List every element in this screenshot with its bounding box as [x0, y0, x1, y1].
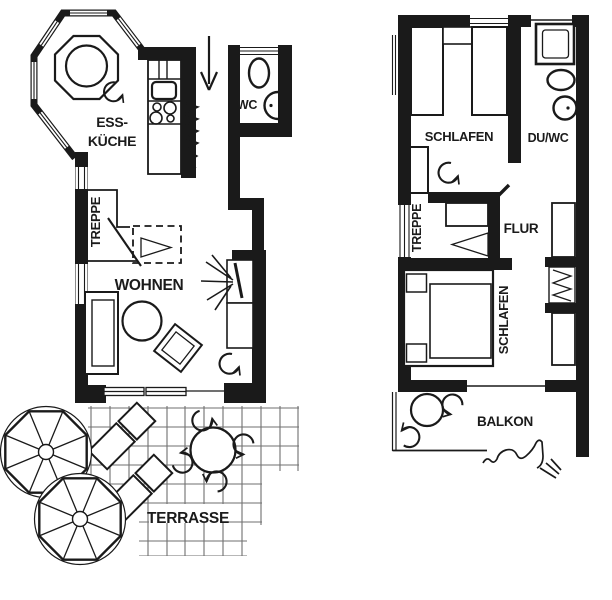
room-label-balkon: BALKON [477, 414, 533, 429]
room-label-esskueche-line2: KÜCHE [88, 133, 136, 149]
room-label-terrasse: TERRASSE [147, 510, 229, 527]
toilet-icon [249, 59, 269, 88]
radiator-icon [549, 267, 575, 303]
room-label-schlafen-main: SCHLAFEN [496, 286, 511, 354]
washbasin-icon [554, 97, 577, 120]
room-label-schlafen-top: SCHLAFEN [425, 129, 493, 144]
window-wc [240, 45, 278, 57]
window-sill-left [393, 35, 396, 95]
sofa-icon [85, 292, 118, 374]
floorplan-page: ESS- KÜCHE WC TREPPE WOHNEN TERRASSE [0, 0, 612, 600]
room-label-treppe-ground: TREPPE [88, 196, 103, 247]
patio-window [104, 388, 225, 396]
parasol-icon [35, 474, 126, 565]
armchair-icon [154, 324, 202, 372]
room-label-treppe-upper: TREPPE [410, 204, 424, 252]
window-left-1 [76, 167, 88, 189]
nightstand-icon [443, 27, 472, 44]
toilet-icon [548, 70, 575, 90]
sun-lounger-icon [89, 403, 155, 469]
wardrobe-icon [552, 203, 575, 257]
room-label-esskueche-line1: ESS- [96, 114, 128, 130]
dining-table-icon [55, 36, 118, 99]
ground-floor-plan: ESS- KÜCHE WC TREPPE WOHNEN TERRASSE [1, 13, 303, 565]
bed-icon [411, 27, 443, 115]
wardrobe-icon [410, 147, 428, 193]
double-bed-icon [404, 270, 493, 366]
wardrobe-icon [552, 313, 575, 365]
chair-swivel-arrow-icon [439, 163, 459, 185]
room-label-wc: WC [237, 98, 257, 112]
plant-icon [483, 440, 561, 478]
stair-direction-triangle [141, 238, 171, 257]
balcony-table-icon [411, 394, 443, 426]
stairs-icon [446, 203, 488, 256]
chair-swivel-arrow-icon [220, 354, 240, 376]
upper-floor-plan: SCHLAFEN DU/WC TREPPE FLUR SCHLAFEN BALK… [393, 15, 590, 478]
kitchen-counter-icon [148, 60, 181, 174]
sink-icon [152, 82, 176, 99]
stair-direction-triangle [452, 233, 488, 256]
cabinet-icon [227, 303, 253, 348]
room-label-flur: FLUR [504, 221, 539, 236]
entrance-arrow-icon [201, 36, 217, 90]
room-label-wohnen: WOHNEN [115, 277, 184, 294]
floorplan-canvas: ESS- KÜCHE WC TREPPE WOHNEN TERRASSE [0, 0, 612, 600]
window-top [470, 15, 508, 27]
chair-swivel-arrow-icon [396, 422, 423, 449]
bed-icon [472, 27, 507, 115]
stair-headroom-dashed-box [133, 226, 181, 263]
room-label-du-wc: DU/WC [528, 131, 569, 145]
washbasin-icon [265, 92, 278, 119]
shower-icon [536, 24, 574, 64]
coffee-table-icon [123, 302, 162, 341]
terrace-table-icon [191, 428, 236, 473]
